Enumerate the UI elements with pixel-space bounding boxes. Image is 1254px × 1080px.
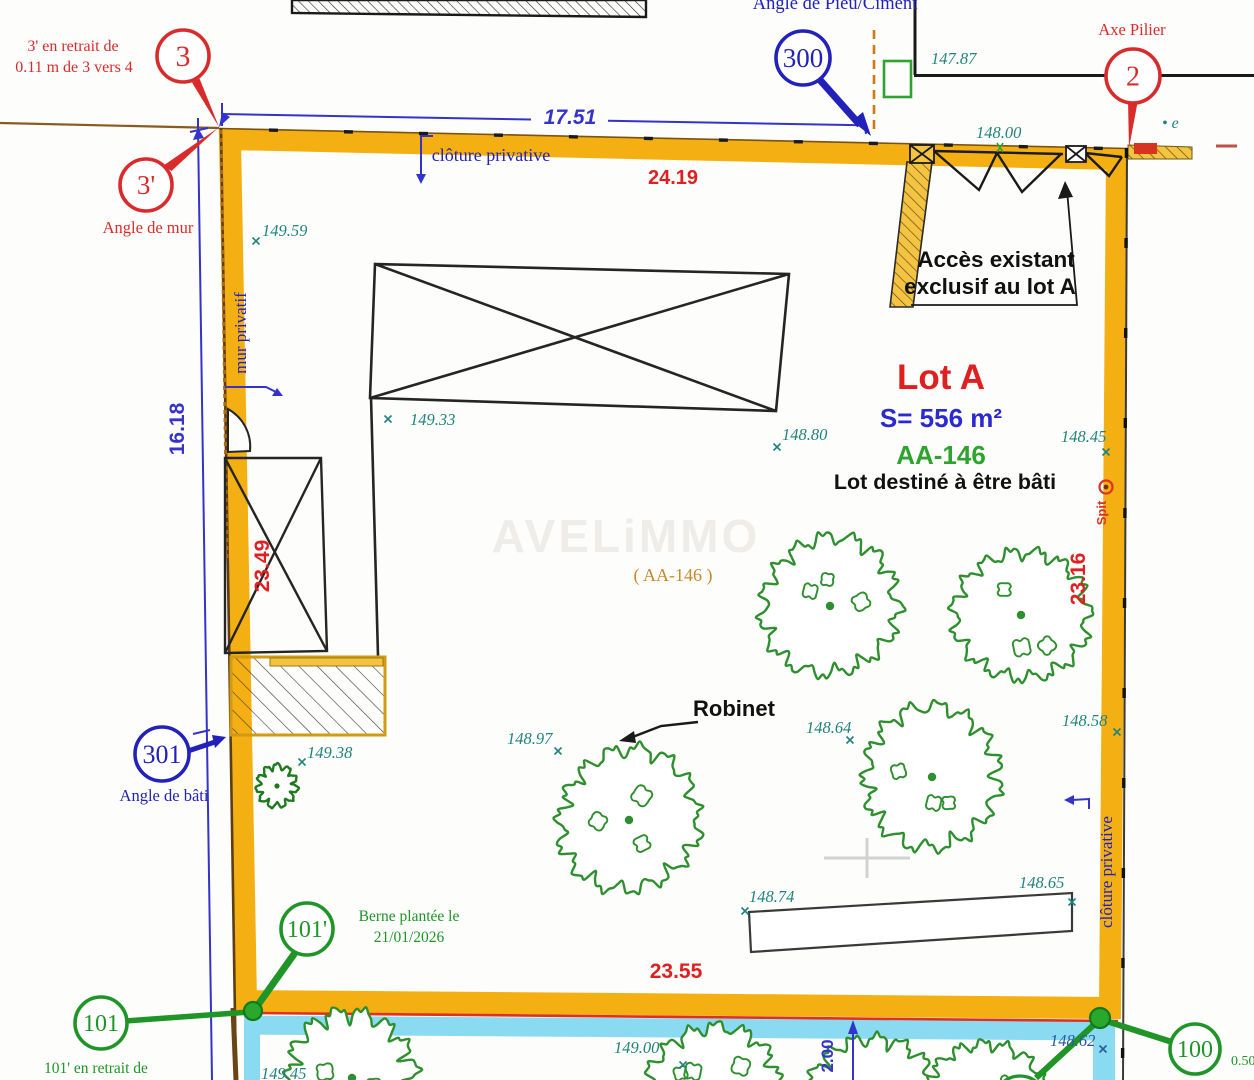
svg-text:clôture privative: clôture privative <box>1097 816 1116 928</box>
svg-text:Spit: Spit <box>1094 500 1109 525</box>
svg-text:• e: • e <box>1162 115 1179 132</box>
svg-text:148.74: 148.74 <box>749 887 794 906</box>
svg-text:149.45: 149.45 <box>261 1064 306 1080</box>
svg-text:2: 2 <box>1126 62 1140 93</box>
svg-text:17.51: 17.51 <box>544 106 597 129</box>
svg-text:149.00: 149.00 <box>614 1038 660 1057</box>
svg-text:23.55: 23.55 <box>650 960 703 983</box>
svg-text:148.62: 148.62 <box>1050 1031 1095 1050</box>
svg-text:148.64: 148.64 <box>806 718 851 737</box>
svg-text:301: 301 <box>143 740 182 769</box>
svg-text:clôture privative: clôture privative <box>432 145 550 165</box>
svg-text:24.19: 24.19 <box>648 167 698 189</box>
svg-text:mur privatif: mur privatif <box>231 292 250 374</box>
svg-text:Axe Pilier: Axe Pilier <box>1098 20 1166 39</box>
svg-text:3: 3 <box>176 40 191 73</box>
svg-text:Angle de Pieu/Ciment: Angle de Pieu/Ciment <box>753 0 918 14</box>
svg-text:Robinet: Robinet <box>693 696 776 721</box>
svg-text:23.16: 23.16 <box>1067 553 1090 606</box>
svg-text:23.49: 23.49 <box>251 540 274 593</box>
svg-text:AVELiMMO: AVELiMMO <box>492 510 760 562</box>
svg-text:101: 101 <box>83 1011 119 1037</box>
svg-text:101' en retrait de: 101' en retrait de <box>44 1060 148 1077</box>
svg-text:148.80: 148.80 <box>782 425 828 444</box>
svg-text:Angle de mur: Angle de mur <box>103 218 194 237</box>
svg-text:148.45: 148.45 <box>1061 427 1106 446</box>
svg-text:exclusif au lot A: exclusif au lot A <box>904 274 1076 299</box>
svg-text:3' en retrait de: 3' en retrait de <box>27 38 118 55</box>
svg-text:101': 101' <box>287 917 327 943</box>
svg-text:3': 3' <box>137 170 155 200</box>
svg-text:100: 100 <box>1177 1037 1213 1063</box>
svg-text:Berne plantée le: Berne plantée le <box>359 908 460 925</box>
svg-text:16.18: 16.18 <box>166 402 189 455</box>
svg-text:148.00: 148.00 <box>976 123 1022 142</box>
svg-text:S= 556 m²: S= 556 m² <box>880 403 1002 433</box>
svg-text:148.97: 148.97 <box>507 729 553 748</box>
svg-text:AA-146: AA-146 <box>896 440 986 470</box>
svg-text:Lot destiné à être bâti: Lot destiné à être bâti <box>834 470 1056 494</box>
svg-text:( AA-146 ): ( AA-146 ) <box>634 565 713 586</box>
svg-text:Angle de bâti: Angle de bâti <box>120 786 209 805</box>
svg-text:148.58: 148.58 <box>1062 711 1108 730</box>
svg-text:300: 300 <box>783 43 824 73</box>
svg-text:148.65: 148.65 <box>1019 873 1064 892</box>
svg-text:Accès existant: Accès existant <box>917 247 1075 272</box>
svg-text:2.00: 2.00 <box>818 1039 837 1072</box>
svg-text:Lot A: Lot A <box>897 358 985 397</box>
svg-text:147.87: 147.87 <box>931 49 977 68</box>
svg-text:149.33: 149.33 <box>410 410 455 429</box>
svg-text:0.50: 0.50 <box>1231 1054 1254 1069</box>
svg-text:149.38: 149.38 <box>307 743 353 762</box>
svg-text:149.59: 149.59 <box>262 221 307 240</box>
svg-text:21/01/2026: 21/01/2026 <box>374 929 445 946</box>
svg-text:0.11 m de 3 vers 4: 0.11 m de 3 vers 4 <box>15 59 133 76</box>
